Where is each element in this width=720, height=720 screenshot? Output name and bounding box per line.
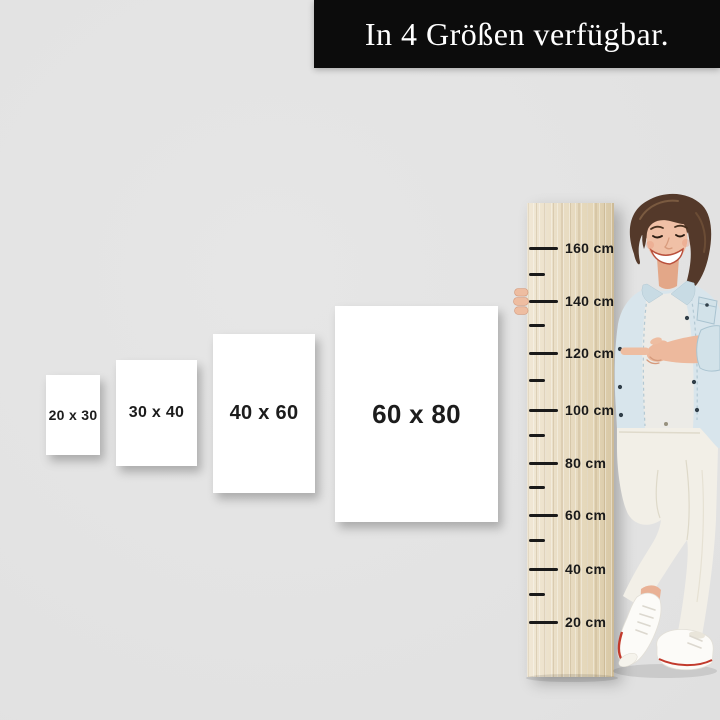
ruler-tick-short xyxy=(529,273,545,276)
woman-ankle xyxy=(639,585,661,635)
front-sneaker xyxy=(617,593,661,669)
ruler-tick-row: 140 cm xyxy=(529,291,614,311)
ruler-tick-label: 100 cm xyxy=(565,402,614,418)
back-sneaker xyxy=(657,629,714,669)
ruler-tick-short xyxy=(529,539,545,542)
size-poster-20x30: 20 x 30 xyxy=(46,375,100,455)
woman-jacket xyxy=(615,281,720,448)
ruler-tick-long xyxy=(529,621,558,624)
ruler-tick-short xyxy=(529,593,545,596)
size-poster-30x40: 30 x 40 xyxy=(116,360,197,466)
ruler-tick-short xyxy=(529,434,545,437)
woman-hair xyxy=(630,194,711,291)
ruler-tick-row: 60 cm xyxy=(529,505,606,525)
ruler-tick-label: 120 cm xyxy=(565,345,614,361)
pointing-arm xyxy=(621,326,720,371)
pointing-hand xyxy=(621,336,670,363)
ruler-tick-long xyxy=(529,300,558,303)
size-poster-60x80: 60 x 80 xyxy=(335,306,498,522)
banner-text: In 4 Größen verfügbar. xyxy=(365,16,669,53)
size-poster-40x60: 40 x 60 xyxy=(213,334,315,493)
ruler-tick-row: 80 cm xyxy=(529,453,606,473)
ruler-tick-long xyxy=(529,409,558,412)
ruler-tick-label: 60 cm xyxy=(565,507,606,523)
ruler-tick-label: 20 cm xyxy=(565,614,606,630)
product-size-infographic: In 4 Größen verfügbar. 20 x 30 30 x 40 4… xyxy=(0,0,720,720)
ruler-tick-long xyxy=(529,352,558,355)
ruler-tick-row: 40 cm xyxy=(529,559,606,579)
woman-tshirt xyxy=(642,287,694,428)
measuring-ruler: 160 cm 140 cm 120 cm 100 cm 80 cm 60 cm … xyxy=(527,203,614,677)
ruler-tick-long xyxy=(529,462,558,465)
poster-size-label: 20 x 30 xyxy=(49,407,98,423)
ruler-tick-long xyxy=(529,568,558,571)
ruler-tick-long xyxy=(529,514,558,517)
poster-size-label: 30 x 40 xyxy=(129,404,184,422)
poster-size-label: 60 x 80 xyxy=(372,399,461,430)
availability-banner: In 4 Größen verfügbar. xyxy=(314,0,720,68)
ruler-tick-row: 20 cm xyxy=(529,612,606,632)
ruler-tick-label: 160 cm xyxy=(565,240,614,256)
ruler-tick-label: 140 cm xyxy=(565,293,614,309)
ruler-tick-label: 80 cm xyxy=(565,455,606,471)
ruler-tick-row: 100 cm xyxy=(529,400,614,420)
woman-face xyxy=(642,206,694,264)
ruler-tick-label: 40 cm xyxy=(565,561,606,577)
poster-size-label: 40 x 60 xyxy=(230,402,299,425)
ruler-tick-short xyxy=(529,486,545,489)
woman-pants xyxy=(617,422,718,654)
ruler-tick-row: 120 cm xyxy=(529,343,614,363)
ruler-tick-long xyxy=(529,247,558,250)
ruler-tick-row: 160 cm xyxy=(529,238,614,258)
ruler-tick-short xyxy=(529,324,545,327)
ruler-tick-short xyxy=(529,379,545,382)
woman-neck xyxy=(657,258,679,289)
